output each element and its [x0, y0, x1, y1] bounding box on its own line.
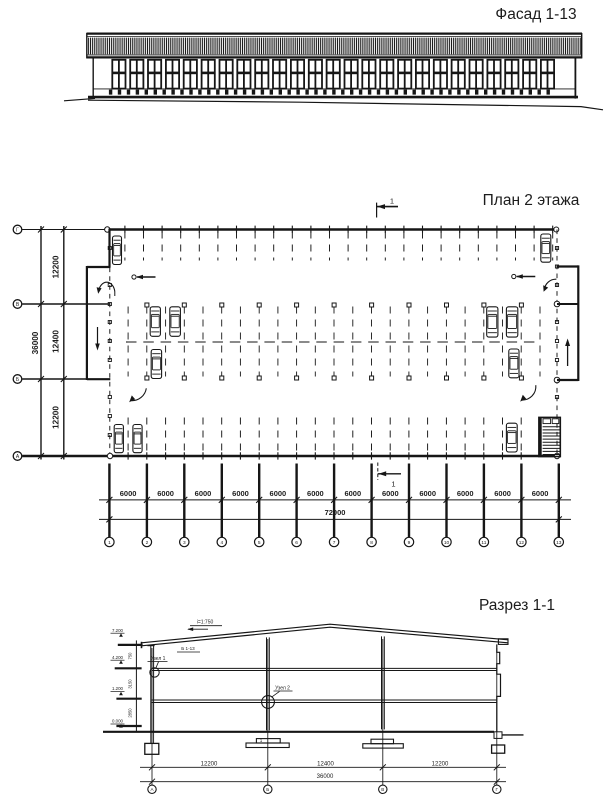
svg-text:8: 8: [370, 540, 373, 546]
svg-text:План 2 этажа: План 2 этажа: [483, 192, 580, 209]
svg-text:6000: 6000: [532, 489, 549, 498]
svg-text:11: 11: [481, 540, 486, 546]
svg-text:В: В: [381, 787, 384, 792]
svg-text:6000: 6000: [270, 489, 287, 498]
svg-text:Фасад 1-13: Фасад 1-13: [495, 6, 576, 23]
svg-text:36000: 36000: [317, 774, 334, 780]
svg-text:12: 12: [519, 540, 525, 546]
svg-text:1: 1: [391, 480, 395, 489]
svg-text:1: 1: [108, 540, 111, 546]
svg-text:36000: 36000: [31, 331, 40, 354]
svg-text:6000: 6000: [157, 489, 174, 498]
svg-text:3: 3: [183, 540, 186, 546]
svg-text:12400: 12400: [317, 761, 334, 767]
svg-text:12200: 12200: [432, 761, 449, 767]
svg-text:6000: 6000: [195, 489, 212, 498]
svg-text:Узел 2: Узел 2: [275, 685, 290, 691]
svg-text:6000: 6000: [494, 489, 511, 498]
svg-text:7: 7: [333, 540, 336, 546]
svg-text:6000: 6000: [120, 489, 137, 498]
svg-text:6000: 6000: [344, 489, 361, 498]
svg-text:3150: 3150: [128, 679, 133, 689]
svg-text:4: 4: [220, 540, 223, 546]
svg-text:9: 9: [408, 540, 411, 546]
svg-text:750: 750: [128, 652, 133, 660]
svg-text:12200: 12200: [201, 761, 218, 767]
svg-text:6000: 6000: [457, 489, 474, 498]
svg-text:Б: Б: [266, 787, 269, 792]
svg-text:Б 1-13: Б 1-13: [181, 646, 195, 651]
svg-text:i=1:750: i=1:750: [197, 619, 214, 625]
svg-text:12400: 12400: [52, 330, 61, 353]
svg-text:6: 6: [295, 540, 298, 546]
svg-text:6000: 6000: [419, 489, 436, 498]
svg-text:Разрез 1-1: Разрез 1-1: [479, 597, 555, 614]
svg-text:72000: 72000: [325, 508, 346, 517]
svg-text:Узел 1: Узел 1: [151, 656, 166, 662]
svg-text:1.200: 1.200: [112, 686, 124, 691]
svg-text:6000: 6000: [382, 489, 399, 498]
svg-text:1: 1: [390, 197, 394, 206]
svg-text:0.000: 0.000: [112, 719, 124, 724]
svg-text:10: 10: [444, 540, 450, 546]
svg-text:4.200: 4.200: [112, 655, 124, 660]
svg-text:2850: 2850: [128, 708, 133, 718]
svg-text:5: 5: [258, 540, 261, 546]
svg-text:12200: 12200: [52, 406, 61, 429]
svg-text:6000: 6000: [232, 489, 249, 498]
svg-text:13: 13: [556, 540, 562, 546]
svg-text:7.200: 7.200: [112, 628, 124, 633]
svg-text:2: 2: [146, 540, 149, 546]
svg-text:Г: Г: [16, 228, 19, 234]
svg-text:12200: 12200: [52, 255, 61, 278]
svg-text:6000: 6000: [307, 489, 324, 498]
